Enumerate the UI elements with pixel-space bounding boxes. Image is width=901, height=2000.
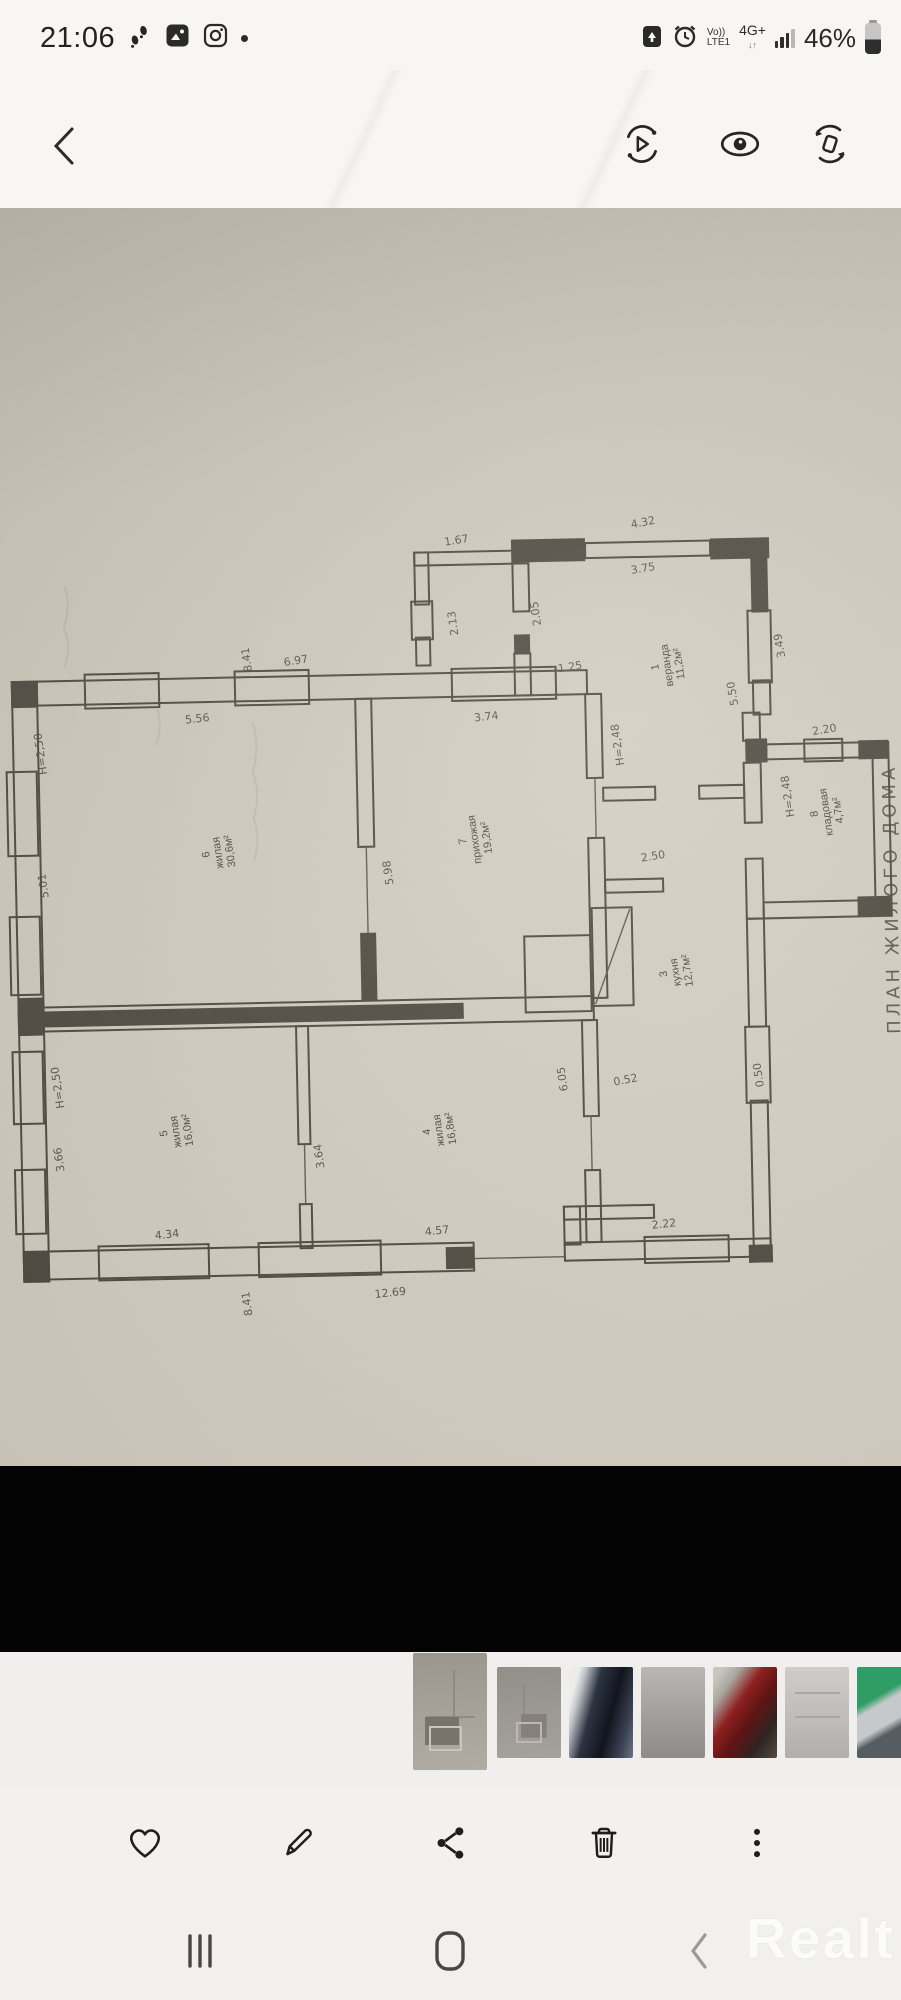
photo-floor-plan[interactable]: 1.674.323.752.052.131.253.495.502.208.41…: [0, 208, 901, 1466]
gallery-notification-icon: [165, 23, 190, 53]
thumbnail-document-photo[interactable]: [785, 1667, 849, 1758]
vision-action-bar: [0, 1466, 901, 1652]
volte-indicator: Vo)) LTE1: [707, 28, 730, 48]
realt-watermark: Realt: [746, 1906, 895, 1972]
thumbnail-gray-photo[interactable]: [641, 1667, 705, 1758]
bottom-toolbar: [0, 1788, 901, 1898]
thumbnail-floor-plan[interactable]: [497, 1667, 561, 1758]
home-button[interactable]: [415, 1916, 485, 1986]
signal-strength-icon: [775, 28, 795, 48]
navigation-bar: Realt: [0, 1898, 901, 2000]
alarm-icon: [672, 23, 698, 54]
show-details-eye-button[interactable]: [716, 120, 764, 168]
battery-icon: [865, 23, 881, 54]
secure-folder-icon: [641, 23, 663, 54]
instagram-notification-icon: [203, 23, 228, 53]
network-type-indicator: 4G+ ↓↑: [739, 24, 766, 52]
thumbnail-green-photo[interactable]: [857, 1667, 901, 1758]
motion-photo-button[interactable]: [618, 120, 666, 168]
rotate-button[interactable]: [806, 120, 854, 168]
more-notifications-dot: [241, 35, 248, 42]
clock: 21:06: [40, 22, 115, 55]
battery-percent: 46%: [804, 23, 856, 54]
recents-button[interactable]: [165, 1916, 235, 1986]
thumbnail-strip: [0, 1652, 901, 1788]
thumbnail-red-photo[interactable]: [713, 1667, 777, 1758]
share-button[interactable]: [419, 1811, 483, 1875]
thumbnail-dark-photo[interactable]: [569, 1667, 633, 1758]
photo-vignette: [0, 208, 901, 1466]
delete-button[interactable]: [572, 1811, 636, 1875]
phone-screen: 21:06 Vo)) LTE1 4G+: [0, 0, 901, 2000]
more-options-button[interactable]: [725, 1811, 789, 1875]
status-bar: 21:06 Vo)) LTE1 4G+: [0, 0, 901, 70]
footprints-notification-icon: [128, 23, 152, 54]
back-button[interactable]: [40, 122, 88, 170]
app-bar: [0, 70, 901, 208]
edit-button[interactable]: [266, 1811, 330, 1875]
thumbnail-floor-plan-selected[interactable]: [413, 1653, 487, 1770]
back-nav-button[interactable]: [665, 1916, 735, 1986]
favorite-button[interactable]: [113, 1811, 177, 1875]
